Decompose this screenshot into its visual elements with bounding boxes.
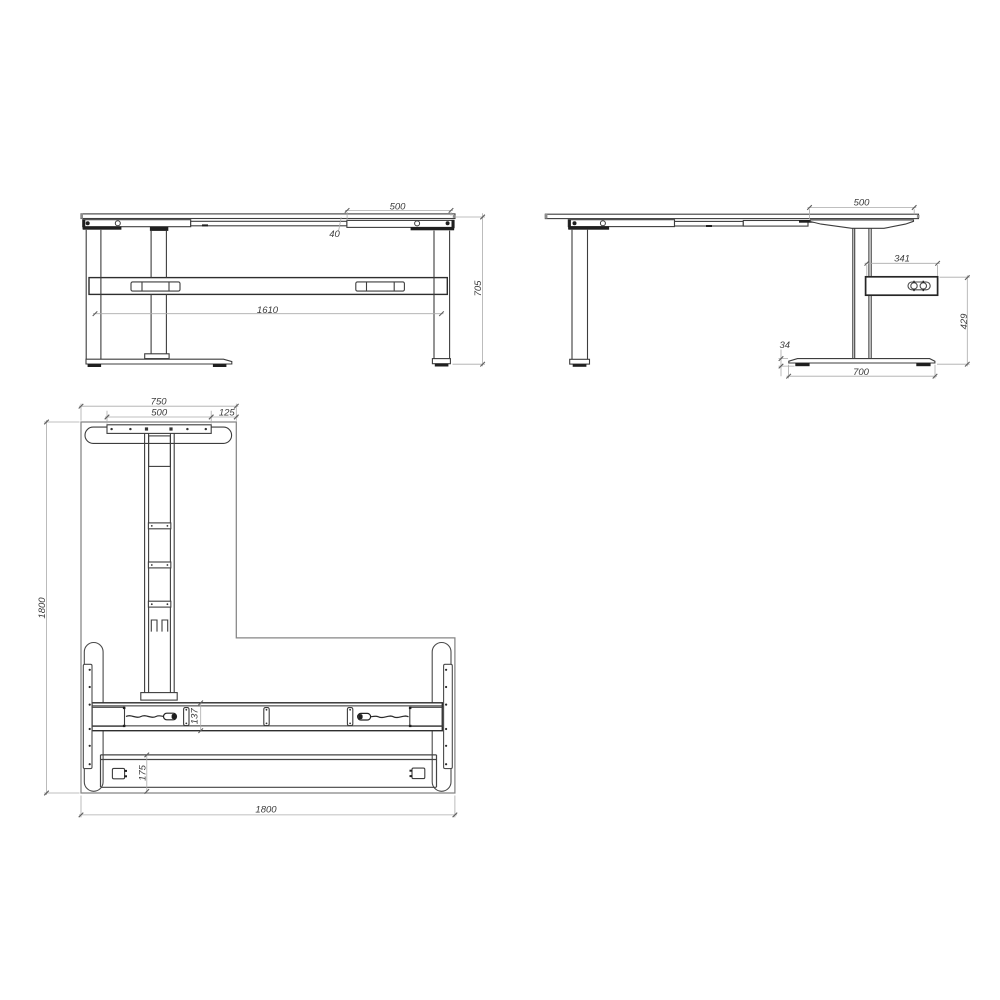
svg-text:700: 700 xyxy=(853,367,870,378)
svg-text:750: 750 xyxy=(151,397,168,408)
svg-text:34: 34 xyxy=(780,340,791,351)
svg-text:429: 429 xyxy=(959,313,970,330)
svg-text:137: 137 xyxy=(190,708,201,725)
svg-text:1610: 1610 xyxy=(257,305,279,316)
svg-text:500: 500 xyxy=(151,408,168,419)
svg-text:175: 175 xyxy=(137,764,148,781)
svg-text:1800: 1800 xyxy=(255,804,277,815)
svg-text:341: 341 xyxy=(894,253,910,264)
svg-text:125: 125 xyxy=(219,408,236,419)
svg-text:705: 705 xyxy=(473,280,484,297)
svg-text:500: 500 xyxy=(854,198,871,209)
svg-text:40: 40 xyxy=(329,229,340,240)
svg-text:500: 500 xyxy=(390,201,407,212)
svg-text:1800: 1800 xyxy=(37,597,48,619)
